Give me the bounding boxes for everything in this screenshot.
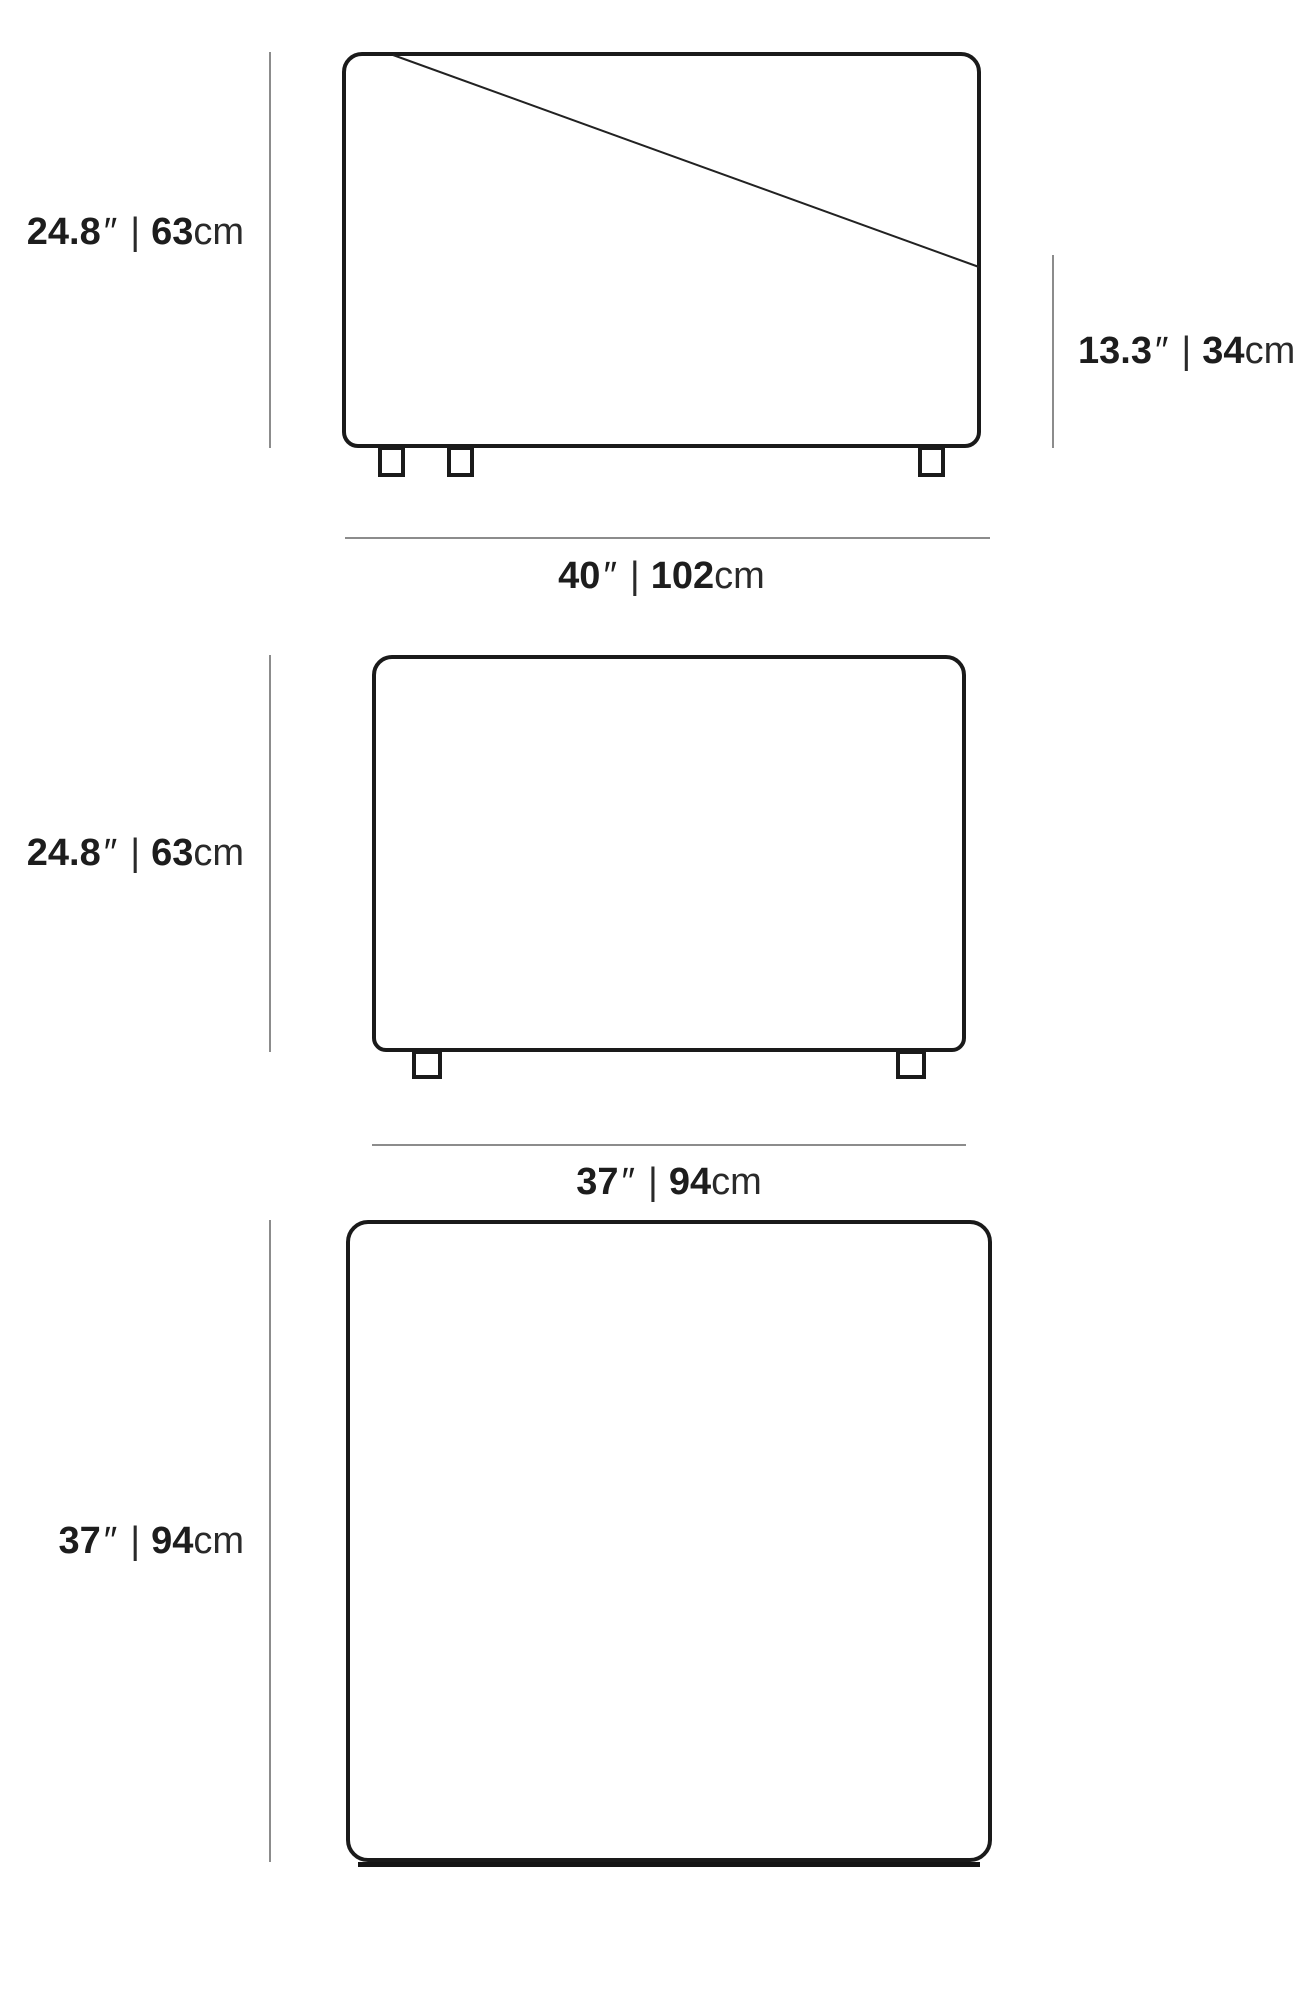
side-depth-dimension-line	[372, 1144, 966, 1146]
separator: |	[130, 832, 140, 874]
seat-height-cm-value: 34	[1202, 330, 1244, 372]
front-width-label: 40″|102cm	[342, 557, 981, 595]
front-view-foot-left-2	[447, 446, 474, 477]
side-view-foot-left	[412, 1050, 442, 1079]
front-width-dimension-line	[345, 537, 990, 539]
height-cm-value: 63	[151, 211, 193, 253]
furniture-dimensions-diagram: 24.8″|63cm 13.3″|34cm 40″|102cm 24.8″	[0, 0, 1305, 2000]
separator: |	[130, 1520, 140, 1562]
front-view-outline	[342, 52, 981, 448]
front-view-foot-right	[918, 446, 945, 477]
width-inches-value: 40	[558, 555, 600, 597]
cm-unit: cm	[714, 555, 765, 597]
depth-cm-value: 94	[151, 1520, 193, 1562]
top-depth-label: 37″|94cm	[0, 1522, 244, 1560]
front-height-label: 24.8″|63cm	[0, 213, 244, 251]
side-view-foot-right	[896, 1050, 926, 1079]
top-depth-dimension-line	[269, 1220, 271, 1862]
inch-mark: ″	[1155, 330, 1168, 372]
inch-mark: ″	[104, 1520, 117, 1562]
side-view-outline	[372, 655, 966, 1052]
separator: |	[130, 211, 140, 253]
width-cm-value: 102	[651, 555, 714, 597]
cm-unit: cm	[193, 832, 244, 874]
separator: |	[648, 1161, 658, 1203]
cm-unit: cm	[193, 1520, 244, 1562]
front-view-foot-left-1	[378, 446, 405, 477]
front-height-dimension-line	[269, 52, 271, 448]
top-view-front-edge-line	[358, 1862, 980, 1867]
cm-unit: cm	[193, 211, 244, 253]
front-seat-height-label: 13.3″|34cm	[1078, 332, 1295, 370]
side-height-dimension-line	[269, 655, 271, 1052]
top-view-outline	[346, 1220, 992, 1862]
height-inches-value: 24.8	[27, 832, 101, 874]
separator: |	[630, 555, 640, 597]
front-seat-height-dimension-line	[1052, 255, 1054, 448]
depth-inches-value: 37	[58, 1520, 100, 1562]
height-cm-value: 63	[151, 832, 193, 874]
inch-mark: ″	[104, 832, 117, 874]
inch-mark: ″	[622, 1161, 635, 1203]
cm-unit: cm	[711, 1161, 762, 1203]
inch-mark: ″	[603, 555, 616, 597]
depth-inches-value: 37	[576, 1161, 618, 1203]
separator: |	[1181, 330, 1191, 372]
cm-unit: cm	[1245, 330, 1296, 372]
height-inches-value: 24.8	[27, 211, 101, 253]
side-depth-label: 37″|94cm	[372, 1163, 966, 1201]
side-height-label: 24.8″|63cm	[0, 834, 244, 872]
depth-cm-value: 94	[669, 1161, 711, 1203]
seat-height-inches-value: 13.3	[1078, 330, 1152, 372]
inch-mark: ″	[104, 211, 117, 253]
